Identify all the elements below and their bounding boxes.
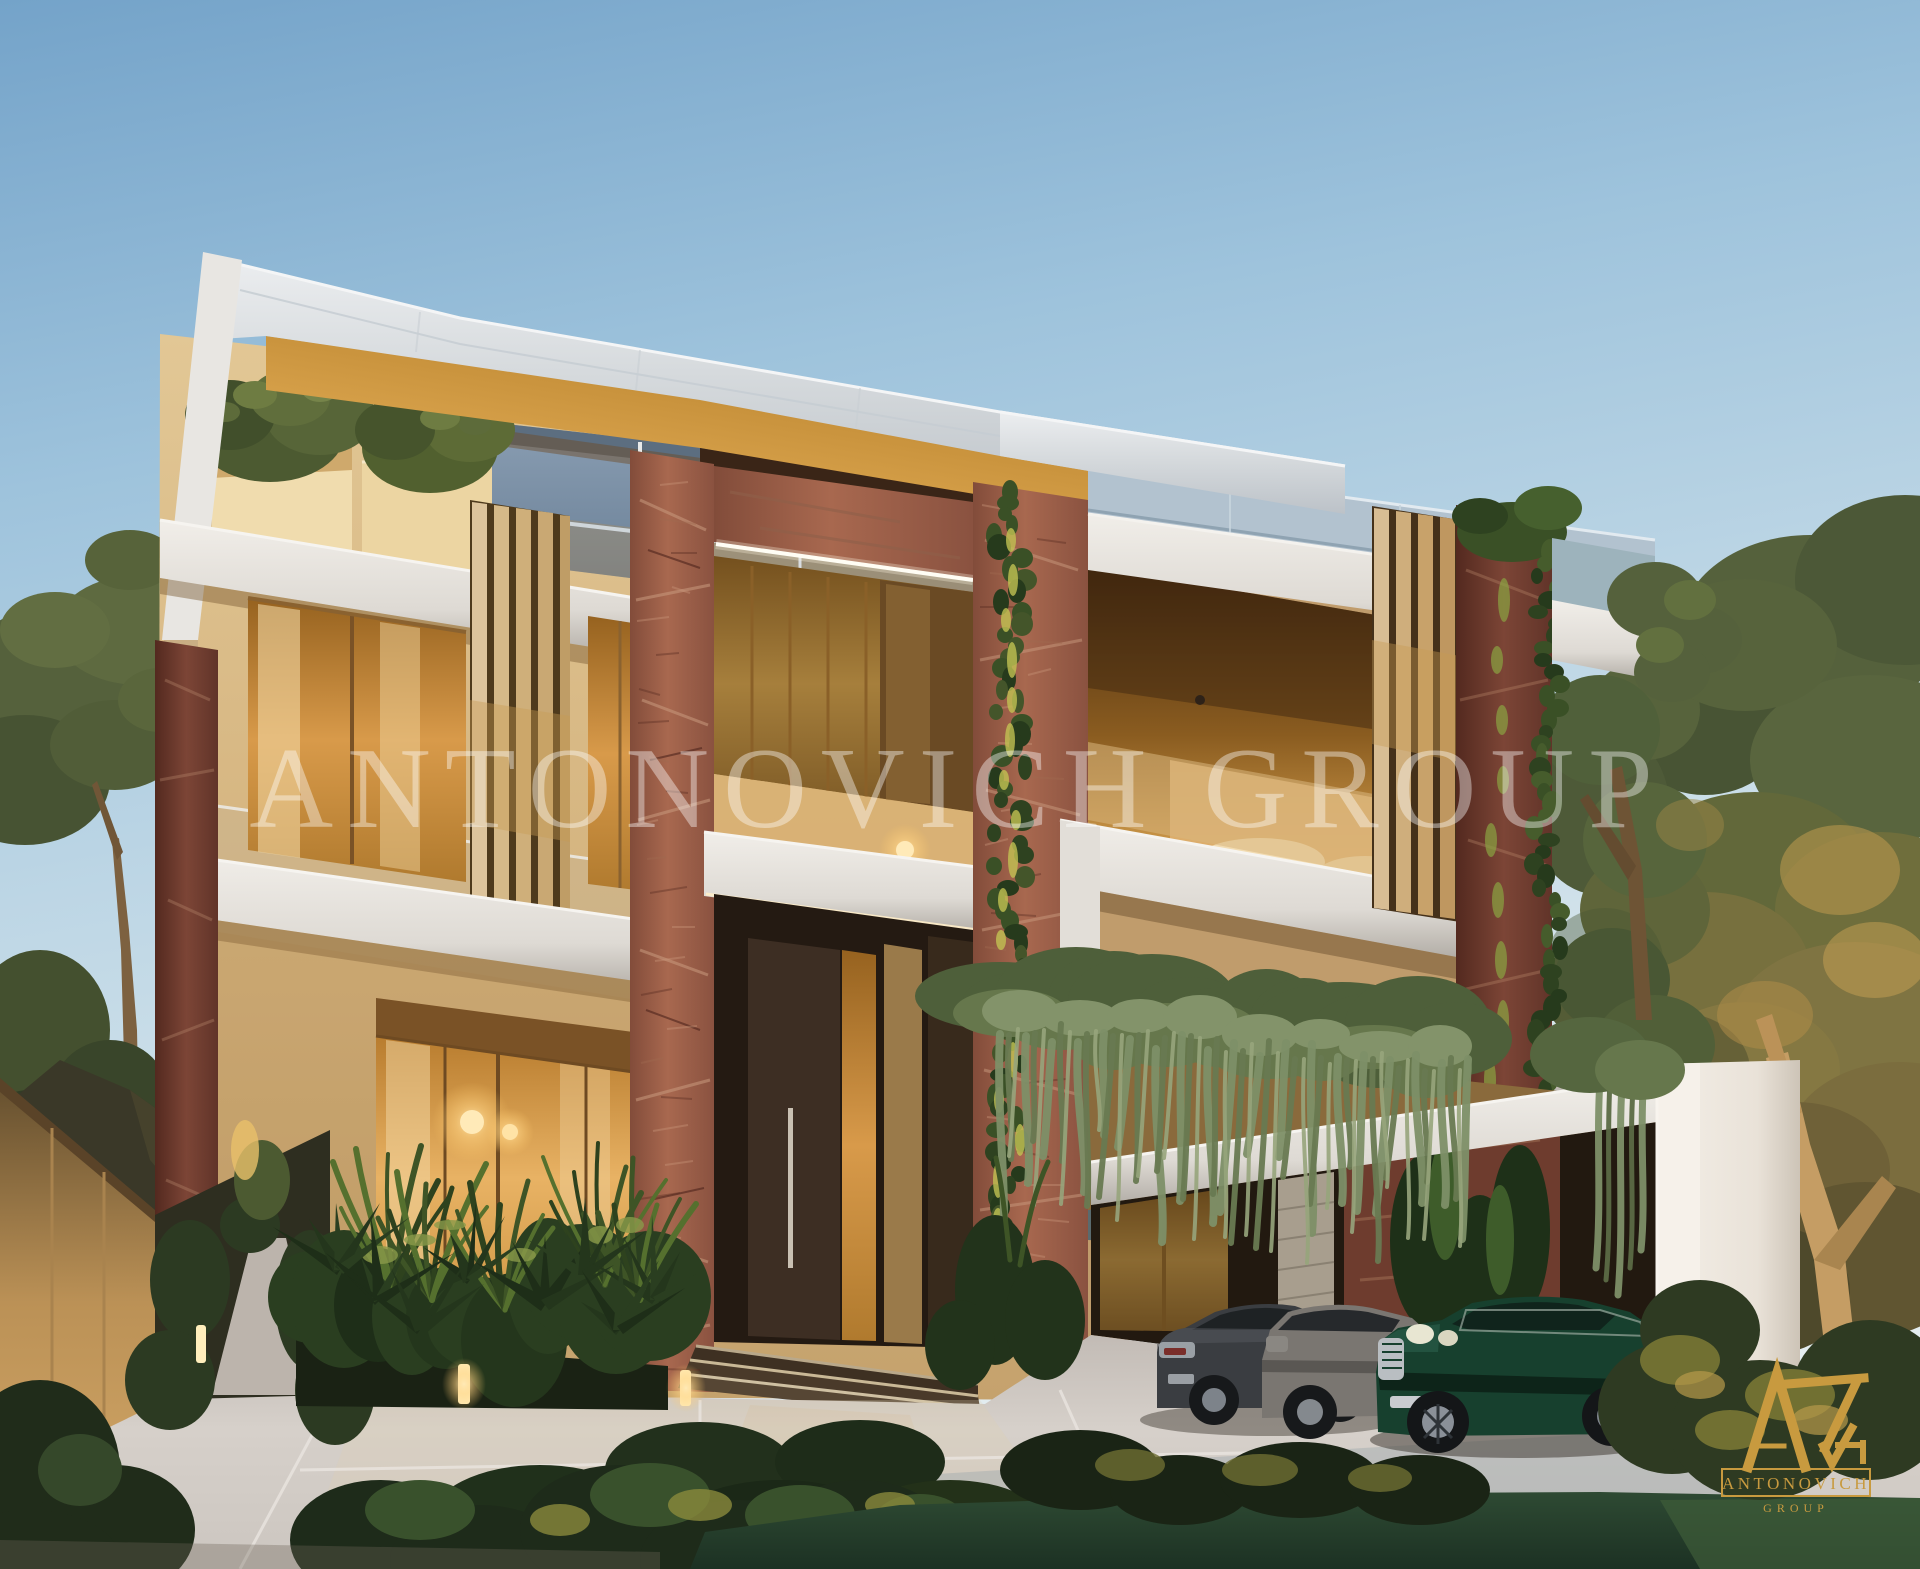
svg-text:ANTONOVICH: ANTONOVICH <box>1722 1474 1870 1493</box>
svg-text:ANTONOVICH GROUP: ANTONOVICH GROUP <box>249 725 1666 853</box>
svg-text:GROUP: GROUP <box>1763 1501 1829 1515</box>
